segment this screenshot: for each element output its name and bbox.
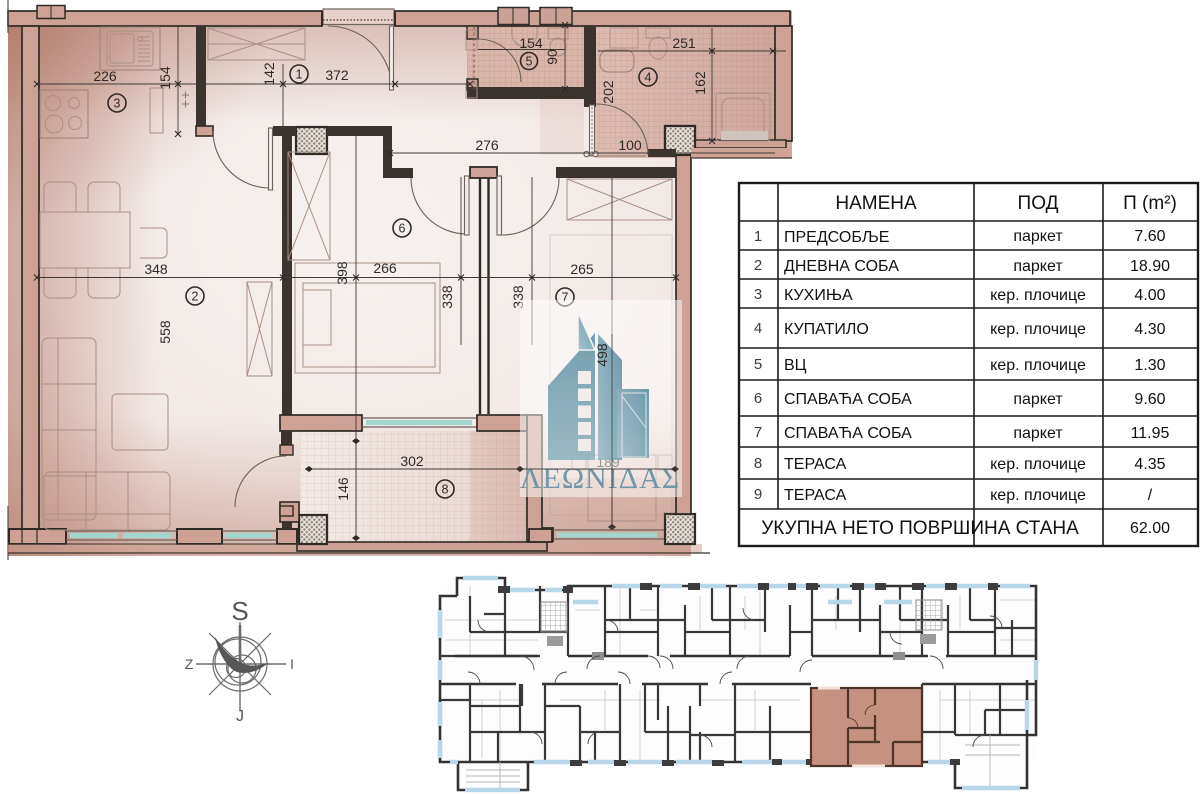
svg-text:КУХИЊА: КУХИЊА [784, 287, 853, 304]
svg-text:276: 276 [475, 137, 499, 153]
svg-text:ТЕРАСА: ТЕРАСА [784, 456, 847, 473]
svg-text:348: 348 [144, 261, 168, 277]
svg-text:226: 226 [93, 68, 117, 84]
svg-text:S: S [231, 596, 248, 626]
svg-text:/: / [1148, 487, 1153, 504]
svg-text:9.60: 9.60 [1134, 391, 1165, 408]
svg-text:6: 6 [399, 222, 406, 236]
svg-text:кер. плочице: кер. плочице [990, 287, 1086, 304]
svg-text:498: 498 [594, 343, 610, 367]
svg-text:18.90: 18.90 [1130, 258, 1170, 275]
svg-text:1: 1 [296, 68, 303, 82]
svg-text:4: 4 [645, 71, 652, 85]
svg-text:7.60: 7.60 [1134, 228, 1165, 245]
svg-text:100: 100 [618, 137, 642, 153]
svg-text:11.95: 11.95 [1131, 425, 1170, 442]
svg-text:398: 398 [334, 261, 350, 285]
svg-text:338: 338 [439, 285, 455, 309]
svg-text:КУПАТИЛО: КУПАТИЛО [784, 321, 869, 338]
svg-text:302: 302 [400, 453, 424, 469]
svg-text:62.00: 62.00 [1130, 520, 1170, 537]
svg-text:кер. плочице: кер. плочице [990, 487, 1086, 504]
svg-text:кер. плочице: кер. плочице [990, 456, 1086, 473]
svg-text:4.00: 4.00 [1134, 287, 1165, 304]
svg-text:J: J [236, 708, 244, 725]
svg-text:ДНЕВНА СОБА: ДНЕВНА СОБА [784, 258, 899, 275]
svg-text:ΛΕΩΝΙΔΑΣ: ΛΕΩΝΙΔΑΣ [520, 462, 680, 495]
svg-text:2: 2 [192, 290, 199, 304]
svg-text:265: 265 [570, 261, 594, 277]
svg-text:ПРЕДСОБЉЕ: ПРЕДСОБЉЕ [784, 229, 889, 246]
svg-text:УКУПНА НЕТО ПОВРШИНА СТАНА: УКУПНА НЕТО ПОВРШИНА СТАНА [761, 518, 1079, 539]
svg-text:558: 558 [157, 320, 173, 344]
svg-text:8: 8 [754, 455, 762, 472]
svg-text:7: 7 [754, 424, 762, 441]
svg-text:162: 162 [692, 71, 708, 95]
svg-text:5: 5 [526, 55, 533, 69]
svg-text:146: 146 [335, 477, 351, 501]
svg-text:кер. плочице: кер. плочице [990, 321, 1086, 338]
svg-text:паркет: паркет [1013, 258, 1063, 275]
svg-text:кер. плочице: кер. плочице [990, 357, 1086, 374]
svg-text:5: 5 [754, 356, 762, 373]
svg-text:НАМЕНА: НАМЕНА [835, 193, 917, 214]
svg-text:4: 4 [754, 320, 762, 337]
svg-text:паркет: паркет [1013, 228, 1063, 245]
svg-text:154: 154 [157, 66, 173, 90]
svg-text:372: 372 [325, 67, 349, 83]
svg-text:ПОД: ПОД [1018, 193, 1059, 214]
svg-text:251: 251 [672, 35, 696, 51]
svg-text:266: 266 [373, 260, 397, 276]
svg-text:142: 142 [261, 62, 277, 86]
svg-text:ТЕРАСА: ТЕРАСА [784, 487, 847, 504]
svg-text:ВЦ: ВЦ [784, 357, 807, 374]
svg-text:П (m²): П (m²) [1123, 193, 1177, 214]
svg-text:3: 3 [114, 97, 121, 111]
svg-text:8: 8 [442, 483, 449, 497]
svg-text:Z: Z [185, 656, 194, 672]
svg-text:4.30: 4.30 [1134, 321, 1165, 338]
svg-text:4.35: 4.35 [1134, 456, 1165, 473]
svg-text:I: I [290, 656, 294, 672]
svg-text:паркет: паркет [1013, 425, 1063, 442]
svg-text:154: 154 [519, 35, 543, 51]
svg-text:6: 6 [754, 390, 762, 407]
svg-text:1.30: 1.30 [1134, 357, 1165, 374]
svg-text:3: 3 [754, 286, 762, 303]
svg-text:202: 202 [600, 80, 616, 104]
svg-text:паркет: паркет [1013, 391, 1063, 408]
svg-text:9: 9 [754, 486, 762, 503]
svg-text:90: 90 [544, 49, 560, 65]
svg-text:2: 2 [754, 257, 762, 274]
svg-text:1: 1 [754, 228, 762, 245]
svg-text:СПАВАЋА СОБА: СПАВАЋА СОБА [784, 425, 912, 442]
svg-text:СПАВАЋА СОБА: СПАВАЋА СОБА [784, 391, 912, 408]
